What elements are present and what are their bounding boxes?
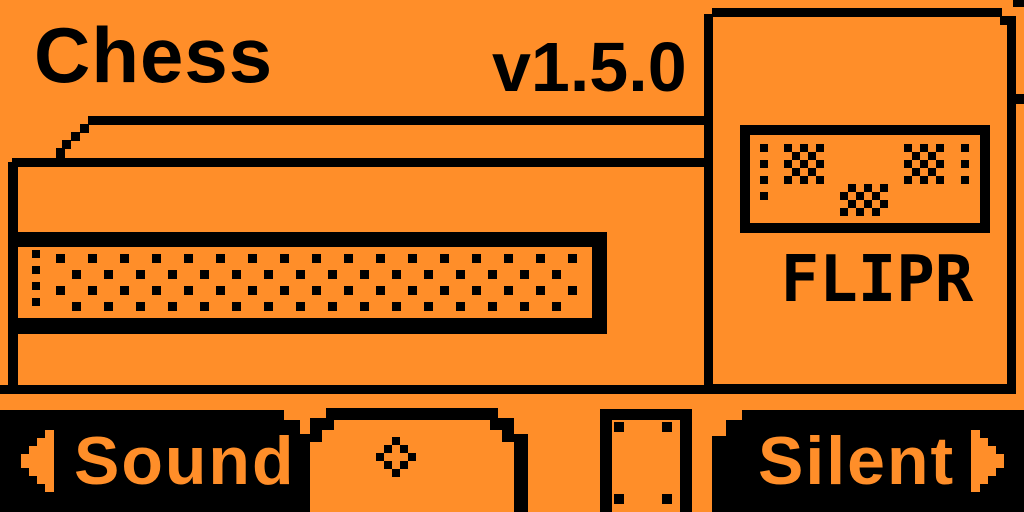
ok-button[interactable] (296, 408, 528, 512)
flipr-card-frame (704, 0, 1024, 394)
sound-button[interactable]: Sound (0, 410, 314, 512)
device-screen: Chess v1.5.0 FLIPR Sound Sile (0, 0, 1024, 512)
stool-drawing (600, 409, 692, 512)
ok-button-face (310, 420, 514, 512)
ground-line (0, 385, 706, 394)
version-label: v1.5.0 (492, 27, 687, 107)
flipr-brand-label: FLIPR (762, 243, 992, 317)
page-title: Chess (34, 10, 273, 101)
arrow-right-icon (971, 430, 1005, 492)
silent-button[interactable]: Silent (712, 410, 1024, 512)
silent-button-label: Silent (758, 422, 955, 500)
sound-button-label: Sound (74, 422, 296, 500)
arrow-left-icon (20, 430, 54, 492)
diamond-icon (376, 437, 416, 477)
table-drawing (8, 116, 704, 394)
